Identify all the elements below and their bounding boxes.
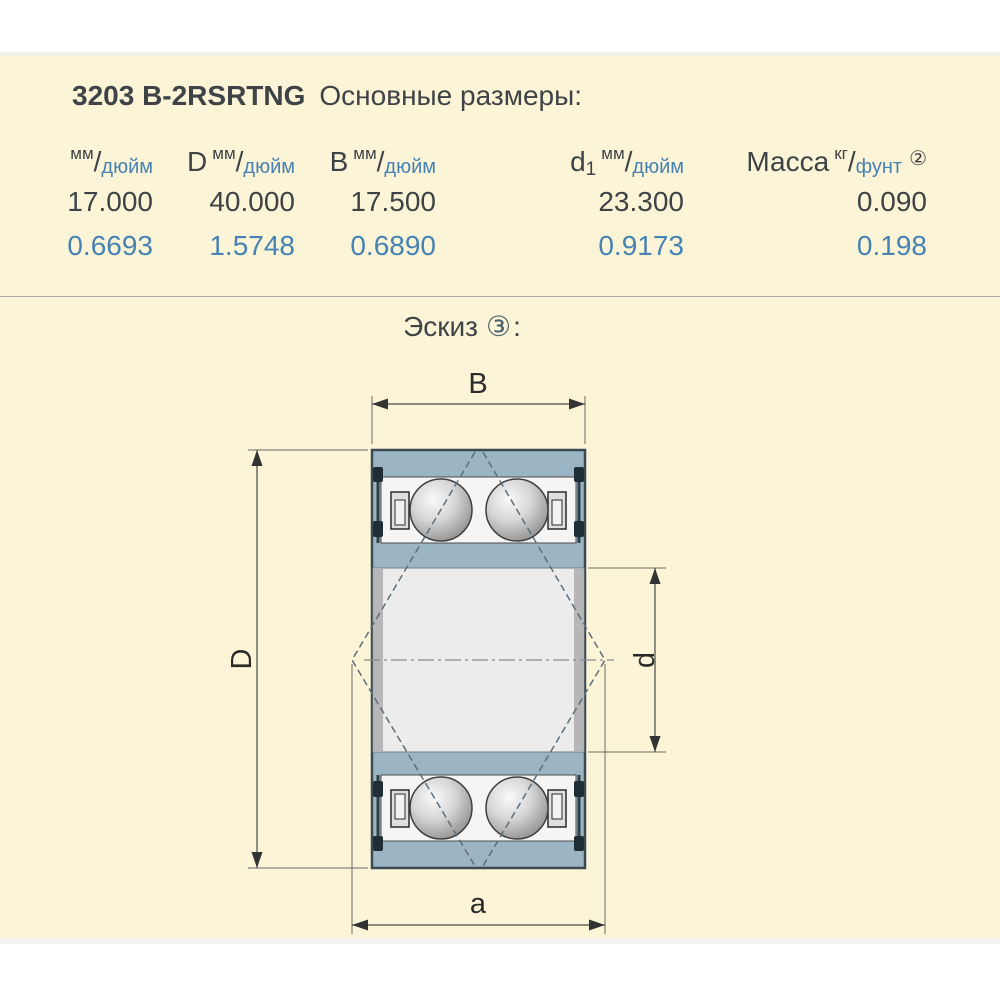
value-in-d1: 0.9173: [436, 224, 684, 268]
bearing-sketch: B D d a: [0, 360, 1000, 950]
ball-bottom-left: [410, 777, 472, 839]
column-header-B: Bмм/дюйм: [295, 118, 436, 180]
dimension-D: D: [226, 450, 368, 868]
value-kg-mass: 0.090: [684, 180, 927, 224]
value-in-B: 0.6890: [295, 224, 436, 268]
value-mm-d1: 23.300: [436, 180, 684, 224]
bearing-spec-page: 3203 B-2RSRTNGОсновные размеры: мм/дюйм …: [0, 0, 1000, 1000]
column-header-mass: Массакг/фунт②: [684, 118, 927, 180]
label-D: D: [226, 649, 258, 670]
footnote-2-mark: ②: [909, 146, 927, 170]
footnote-3-mark: ③: [486, 310, 511, 343]
label-a: a: [470, 888, 487, 920]
dimension-B: B: [372, 368, 585, 444]
part-number: 3203 B-2RSRTNG: [72, 80, 305, 111]
bearing-cross-section: [372, 450, 585, 868]
column-header-d1: d1мм/дюйм: [436, 118, 684, 180]
dimension-d: d: [588, 568, 666, 752]
column-header-d-bore: мм/дюйм: [0, 118, 153, 180]
value-mm-B: 17.500: [295, 180, 436, 224]
column-header-D: Dмм/дюйм: [153, 118, 295, 180]
label-B: B: [468, 368, 487, 400]
value-in-d: 0.6693: [0, 224, 153, 268]
value-in-D: 1.5748: [153, 224, 295, 268]
value-mm-D: 40.000: [153, 180, 295, 224]
sketch-title: Эскиз③:: [0, 310, 924, 343]
label-d: d: [629, 652, 661, 668]
dimensions-table: мм/дюйм Dмм/дюйм Bмм/дюйм d1мм/дюйм Масс…: [0, 118, 927, 268]
page-title: 3203 B-2RSRTNGОсновные размеры:: [72, 80, 582, 112]
value-lb-mass: 0.198: [684, 224, 927, 268]
section-title: Основные размеры:: [319, 80, 582, 111]
value-mm-d: 17.000: [0, 180, 153, 224]
section-divider: [0, 296, 1000, 297]
